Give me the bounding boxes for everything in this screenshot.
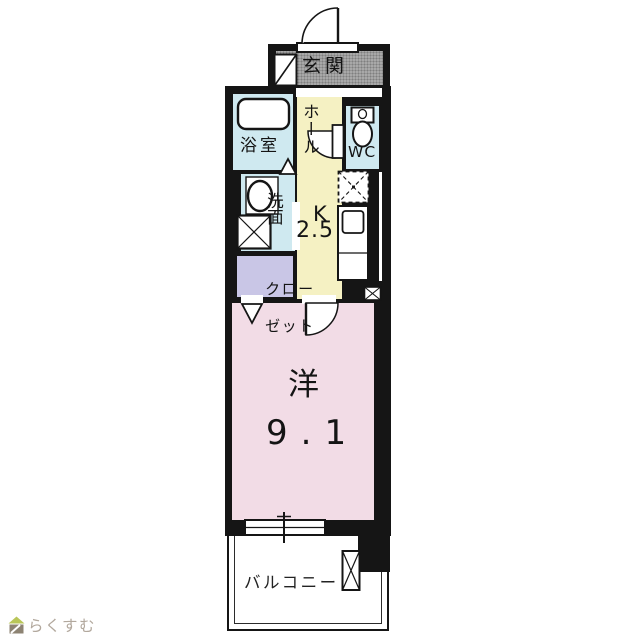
house-logo-icon xyxy=(8,616,25,634)
washroom-label: 洗面 xyxy=(265,192,282,246)
site-logo: らくすむ xyxy=(8,614,96,636)
site-logo-text: らくすむ xyxy=(28,614,96,636)
wall-right-stub xyxy=(358,533,390,572)
genkan-label: 玄関 xyxy=(302,57,348,77)
main-room-label: 洋 xyxy=(288,369,319,402)
right-wall-duct-line xyxy=(379,172,382,281)
closet-label-line1: クロー xyxy=(265,280,315,298)
entrance-sill xyxy=(296,42,359,53)
entrance-door-swing-icon xyxy=(302,8,338,44)
hall-label: ホール xyxy=(301,103,318,169)
kitchen-size-label: 2.5 xyxy=(296,219,334,242)
closet-label-line2: ゼット xyxy=(265,317,315,335)
wc-label: WC xyxy=(348,144,376,160)
genkan-step xyxy=(296,88,382,97)
bath-label: 浴室 xyxy=(240,138,280,156)
window-opening xyxy=(244,519,326,536)
main-room-size-label: 9.1 xyxy=(266,416,359,452)
bath-floor xyxy=(233,94,293,170)
floor-plan: 玄関 浴室 ホール WC 洗面 K 2.5 クロー ゼット 洋 9.1 バルコニ… xyxy=(0,0,640,640)
balcony-label: バルコニー xyxy=(244,574,339,591)
closet-label: クロー ゼット xyxy=(240,261,315,354)
